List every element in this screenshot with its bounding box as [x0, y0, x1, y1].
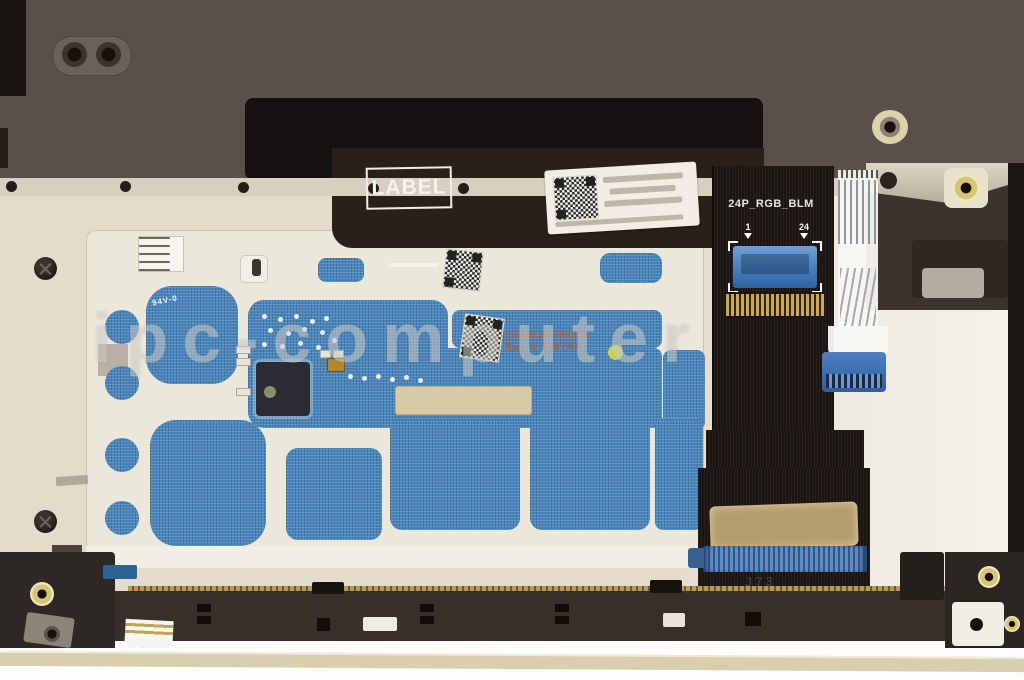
qr-code-pcb-label	[459, 313, 505, 362]
pcb-cutout-circle	[105, 366, 139, 400]
touchpad-ffc-conductors-lower	[840, 268, 876, 326]
rail-hole	[420, 616, 434, 624]
label-placeholder-text: LABEL	[371, 175, 446, 200]
strip-screw-hole	[238, 182, 249, 193]
label-placeholder-box: LABEL	[366, 166, 453, 209]
touchpad-ffc-conductors	[838, 180, 878, 244]
pcb-revision: Rev.A 58974A	[505, 341, 582, 353]
rail-boss	[900, 552, 944, 600]
rail-window-white	[363, 617, 397, 631]
pcb-passive-component	[236, 346, 251, 354]
pcb-cutout-circle	[105, 501, 139, 535]
right-brass-insert	[978, 566, 1000, 588]
pin1-number: 1	[740, 222, 756, 232]
pcb-cutout-top-right-small	[600, 253, 662, 283]
ffc-tip-pins	[826, 374, 882, 388]
pcb-part-number: ZH2012-043301	[505, 329, 590, 341]
screw-hole	[96, 42, 121, 67]
touchpad-ffc-blue-tip	[822, 352, 886, 392]
hinge-brass-insert	[952, 174, 980, 202]
deck-screw-grommet	[872, 110, 908, 144]
touchpad-ffc-tail	[124, 619, 173, 649]
deck-edge-mark	[0, 128, 8, 168]
right-brass-screw	[1004, 616, 1020, 632]
pin24-number: 24	[796, 222, 812, 232]
pcb-cutout-bottom-far-right	[655, 418, 703, 530]
stiffener-side-tab	[688, 548, 704, 568]
serial-label-sticker	[544, 161, 700, 234]
rail-hole	[555, 604, 569, 612]
cable-connector-label: 24P_RGB_BLM	[718, 198, 824, 210]
pcb-yellow-dot	[608, 345, 623, 360]
left-brass-insert	[30, 582, 54, 606]
cable-connector-window	[733, 246, 817, 288]
connector-corner-brackets	[728, 241, 822, 293]
pcb-cutout-circle	[105, 438, 139, 472]
pcb-cutout-bottom-mid	[286, 448, 382, 540]
hinge-bracket-hole	[880, 172, 897, 189]
touchpad-cable-blue-tip	[103, 565, 137, 579]
strip-screw-hole	[458, 183, 469, 194]
rail-hole	[745, 612, 761, 626]
rail-hole	[197, 616, 211, 624]
screw-hole	[62, 42, 87, 67]
rail-latch-tab	[312, 582, 344, 594]
cable-stiffener-blue	[703, 546, 867, 572]
pin1-arrow-icon	[744, 233, 752, 239]
rail-hole	[420, 604, 434, 612]
rail-hole	[555, 616, 569, 624]
pcb-cutout-bottom-center	[390, 418, 520, 530]
rail-latch-white	[663, 613, 685, 627]
chip-logo-mark	[264, 386, 276, 398]
slot-line	[388, 263, 438, 267]
deck-corner-black	[0, 0, 26, 96]
label-text-line	[603, 172, 683, 183]
right-bracket-hole	[970, 618, 983, 631]
hinge-latch-tab	[922, 268, 984, 298]
qr-code-bracket-label	[442, 248, 484, 292]
strip-screw-hole	[6, 181, 17, 192]
pcb-cutout-circle	[105, 310, 139, 344]
rail-hole	[317, 618, 330, 631]
pcb-inductor-component	[327, 358, 345, 372]
pcb-passive-component	[333, 350, 344, 358]
left-screw-hole	[44, 626, 60, 642]
pin24-arrow-icon	[800, 233, 808, 239]
rail-hole	[197, 604, 211, 612]
pcb-test-point-row	[348, 374, 353, 379]
cable-gold-fingers	[726, 292, 824, 318]
spring-contact-sticker	[138, 236, 184, 272]
touchpad-plate-lower-strip	[86, 546, 702, 568]
solder-pad-connector	[395, 386, 532, 415]
strip-screw-hole	[120, 181, 131, 192]
label-text-line	[609, 185, 675, 195]
qr-code-serial-label	[553, 175, 600, 222]
kapton-tape	[709, 501, 858, 550]
pcb-passive-component	[236, 388, 251, 396]
bracket-screw	[34, 510, 57, 533]
bracket-screw	[34, 257, 57, 280]
pcb-passive-component	[320, 350, 331, 358]
pcb-cutout-bottom-right	[530, 418, 650, 530]
chassis-right-edge	[1008, 163, 1024, 600]
hook-latch	[252, 259, 261, 276]
pcb-passive-component	[236, 358, 251, 366]
pcb-test-point-dots	[262, 314, 267, 319]
label-text-line	[604, 196, 682, 207]
rail-latch-tab	[650, 580, 682, 593]
pcb-cutout-top-small	[318, 258, 364, 282]
laptop-palmrest-internal-photo: 94V-0 ZH2012-043301 Rev.A 58974A LABEL	[0, 0, 1024, 680]
pcb-cutout-bottom-left	[150, 420, 266, 546]
front-rail	[75, 591, 1010, 641]
